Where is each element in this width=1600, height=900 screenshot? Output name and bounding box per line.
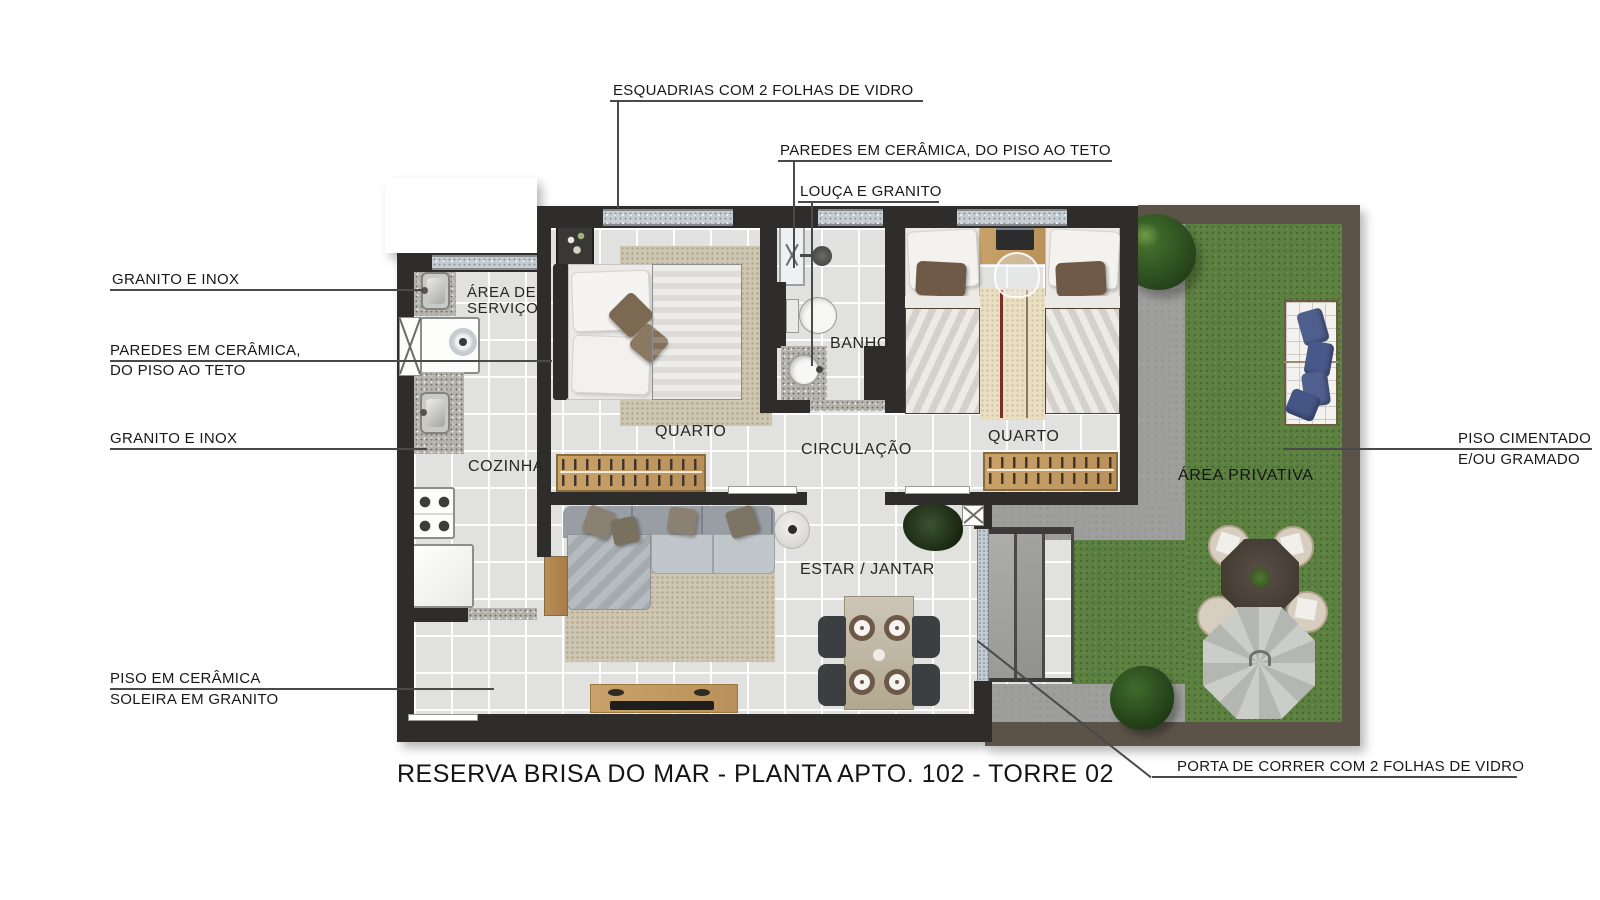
leader-louca xyxy=(811,201,813,366)
plan-title: RESERVA BRISA DO MAR - PLANTA APTO. 102 … xyxy=(397,760,1114,789)
room-label-cozinha: COZINHA xyxy=(468,458,544,476)
leader-paredes-top-underline xyxy=(778,160,1112,162)
leader-granito-bottom xyxy=(110,448,427,450)
label-piso-ceramica-2: SOLEIRA EM GRANITO xyxy=(110,691,279,709)
floor-plan-canvas: ESQUADRIAS COM 2 FOLHAS DE VIDRO PAREDES… xyxy=(0,0,1600,900)
label-porta-correr: PORTA DE CORRER COM 2 FOLHAS DE VIDRO xyxy=(1177,758,1524,776)
leader-esquadrias xyxy=(617,100,619,208)
annotation-layer: ESQUADRIAS COM 2 FOLHAS DE VIDRO PAREDES… xyxy=(0,0,1600,900)
label-esquadrias: ESQUADRIAS COM 2 FOLHAS DE VIDRO xyxy=(613,82,914,100)
leader-piso-cimentado xyxy=(1283,448,1592,450)
leader-porta-diagonal xyxy=(977,640,1152,778)
label-granito-top: GRANITO E INOX xyxy=(112,271,239,289)
label-piso-cimentado-1: PISO CIMENTADO xyxy=(1458,430,1591,448)
room-label-area-servico-2: SERVIÇO xyxy=(467,300,538,318)
leader-esquadrias-underline xyxy=(610,100,923,102)
room-label-quarto2: QUARTO xyxy=(988,428,1059,446)
leader-louca-underline xyxy=(798,201,939,203)
label-paredes-left-2: DO PISO AO TETO xyxy=(110,362,246,380)
room-label-circulacao: CIRCULAÇÃO xyxy=(801,441,912,459)
room-label-estar-jantar: ESTAR / JANTAR xyxy=(800,561,935,579)
room-label-area-privativa: ÁREA PRIVATIVA xyxy=(1178,467,1314,485)
label-granito-bottom: GRANITO E INOX xyxy=(110,430,237,448)
label-piso-cimentado-2: E/OU GRAMADO xyxy=(1458,451,1580,469)
room-label-banho: BANHO xyxy=(830,335,890,353)
label-paredes-top: PAREDES EM CERÂMICA, DO PISO AO TETO xyxy=(780,142,1111,160)
label-louca: LOUÇA E GRANITO xyxy=(800,183,942,201)
leader-granito-top xyxy=(110,289,424,291)
leader-paredes-top xyxy=(793,160,795,268)
label-paredes-left-1: PAREDES EM CERÂMICA, xyxy=(110,342,301,360)
leader-porta-underline xyxy=(1152,776,1517,778)
leader-piso-ceramica xyxy=(110,688,494,690)
room-label-quarto1: QUARTO xyxy=(655,423,726,441)
label-piso-ceramica-1: PISO EM CERÂMICA xyxy=(110,670,261,688)
